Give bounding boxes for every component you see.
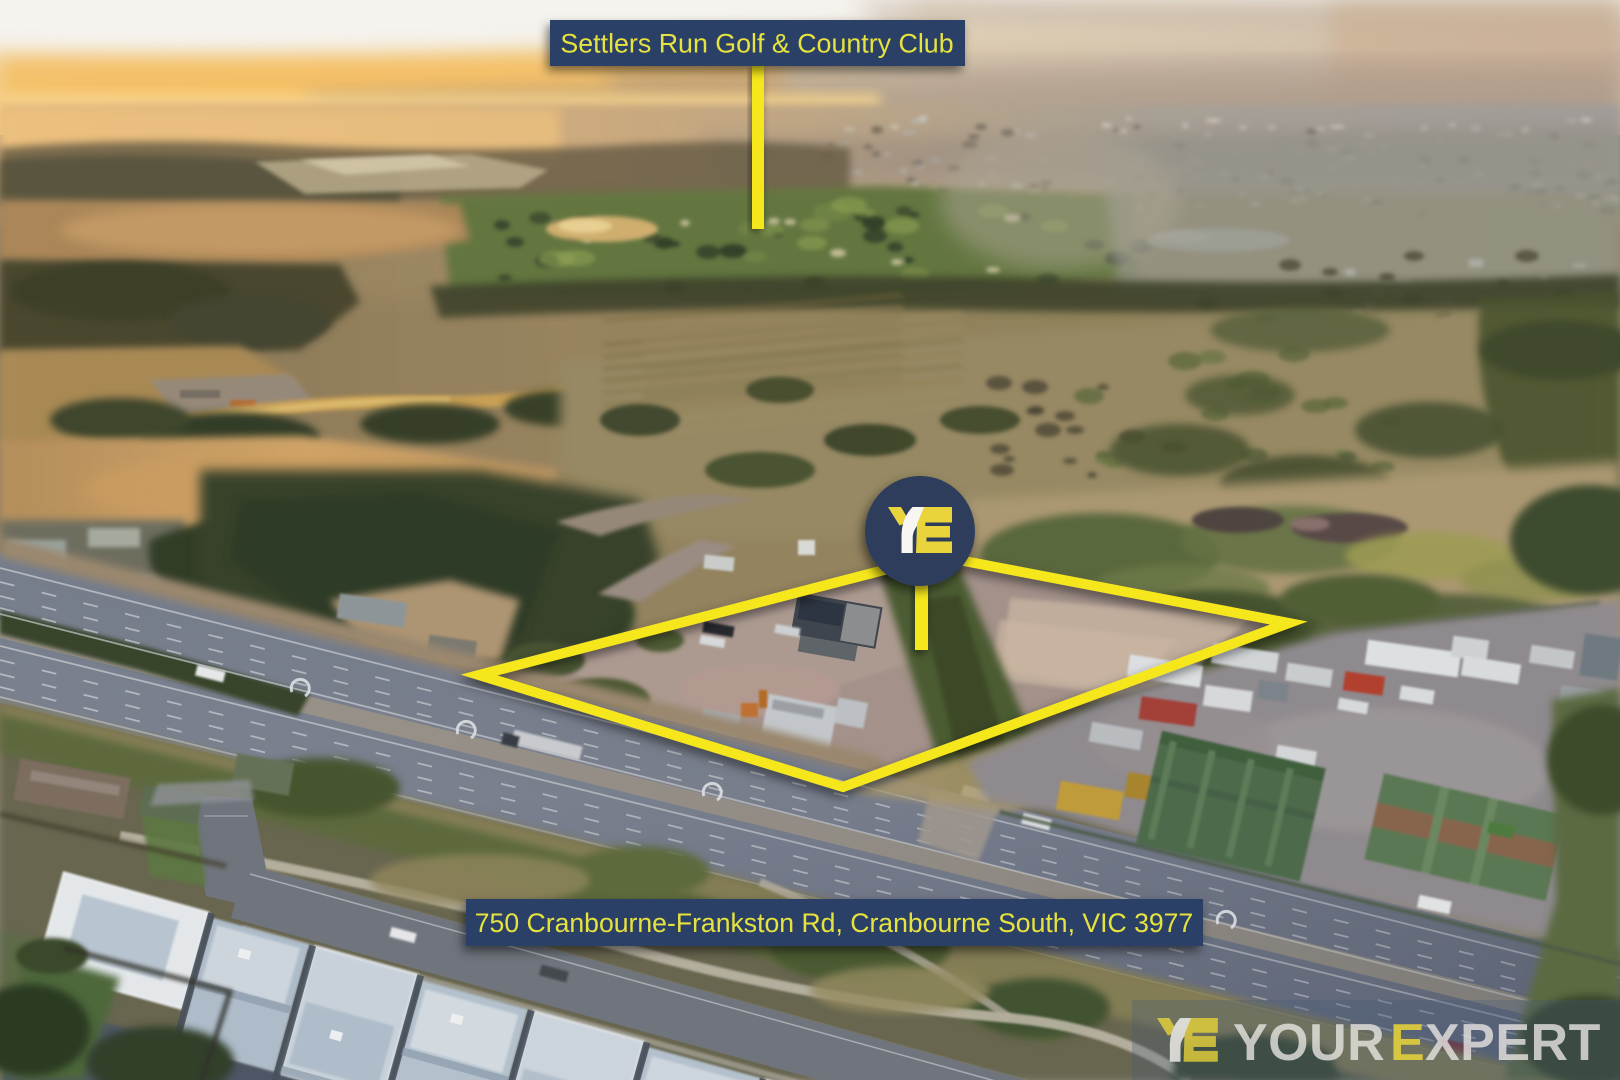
svg-text:YOUR: YOUR xyxy=(1233,1014,1385,1072)
svg-text:XPERT: XPERT xyxy=(1425,1014,1601,1072)
svg-text:Settlers Run Golf & Country Cl: Settlers Run Golf & Country Club xyxy=(560,29,953,59)
svg-text:E: E xyxy=(1390,1014,1425,1072)
svg-text:750 Cranbourne-Frankston Rd, C: 750 Cranbourne-Frankston Rd, Cranbourne … xyxy=(475,908,1193,938)
